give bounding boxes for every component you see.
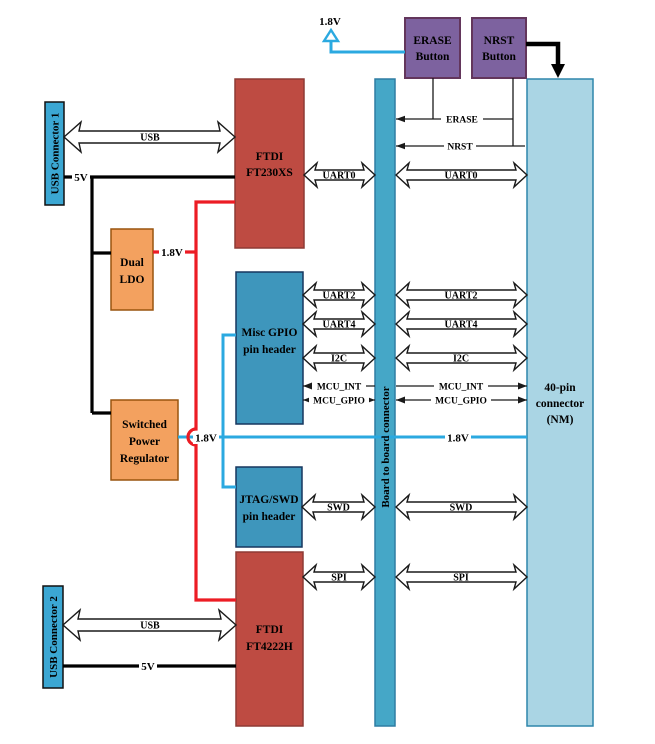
regulator-label-line2: Power: [129, 436, 160, 448]
mcu-int-label-left: MCU_INT: [317, 383, 362, 393]
mcu-int-arrowhead-right: [518, 383, 527, 390]
mcu-int-arrowhead-left: [303, 383, 312, 390]
ftdi-ft4222h-label-line1: FTDI: [256, 624, 284, 636]
bus-label-uart2-right: UART2: [445, 291, 478, 302]
v18-bus-label: 1.8V: [447, 433, 469, 445]
jtag-swd-label-line2: pin header: [243, 511, 296, 523]
wire-1v8-red: [188, 202, 236, 600]
nrst-signal-label: NRST: [447, 143, 473, 153]
nrst-signal-line: [396, 78, 525, 146]
nrst-arrowhead: [396, 143, 405, 149]
jtag-swd-pin-header-block: [236, 467, 302, 547]
dual-ldo-label-line2: LDO: [120, 274, 145, 286]
erase-signal-line: [396, 78, 513, 119]
pin40-label-line3: (NM): [547, 414, 574, 426]
regulator-label-line3: Regulator: [120, 453, 169, 465]
bus-label-swd-left: SWD: [327, 503, 350, 514]
v5-top-label: 5V: [74, 172, 88, 184]
mcu-gpio-label-left: MCU_GPIO: [313, 397, 365, 407]
ftdi-ft230xs-label-line2: FT230XS: [246, 167, 293, 179]
wire-1v8-cyan-headers: [223, 335, 236, 487]
bus-label-i2c-right: I2C: [453, 354, 469, 365]
erase-button-label-line1: ERASE: [413, 35, 452, 47]
erase-button-block: [405, 18, 460, 78]
erase-signal-label: ERASE: [446, 116, 478, 126]
nrst-to-40pin-arrowhead: [551, 64, 565, 78]
pin40-label-line1: 40-pin: [544, 382, 576, 394]
nrst-button-block: [472, 18, 526, 78]
pin40-label-line2: connector: [536, 398, 585, 410]
bus-label-swd-right: SWD: [450, 503, 473, 514]
wire-5v-branch: [92, 177, 111, 413]
v18-regulator-label: 1.8V: [195, 433, 217, 445]
jtag-swd-label-line1: JTAG/SWD: [239, 494, 298, 506]
v18-ldo-label: 1.8V: [161, 247, 183, 259]
usb-connector-2-label: USB Connector 2: [48, 596, 60, 678]
power-flag-1v8-arrow: [324, 30, 338, 41]
bus-label-spi-left: SPI: [331, 573, 347, 584]
mcu-gpio-label-right: MCU_GPIO: [435, 397, 487, 407]
usb-connector-1-label: USB Connector 1: [50, 113, 62, 195]
bus-label-spi-right: SPI: [453, 573, 469, 584]
v5-bottom-label: 5V: [141, 661, 155, 673]
erase-arrowhead: [396, 116, 405, 122]
ftdi-ft230xs-block: [235, 79, 304, 248]
bus-label-usb-top: USB: [140, 133, 160, 144]
nrst-button-label-line2: Button: [482, 51, 516, 63]
bus-label-i2c-left: I2C: [331, 354, 347, 365]
mcu-gpio-arrowhead-right-b: [518, 397, 527, 404]
erase-button-label-line2: Button: [416, 51, 450, 63]
bus-label-uart4-left: UART4: [323, 320, 356, 331]
misc-gpio-label-line1: Misc GPIO: [242, 327, 298, 339]
v18-flag-top-label: 1.8V: [319, 16, 341, 28]
wire-1v8-cyan-erase-button: [331, 41, 405, 52]
bus-label-uart0-right: UART0: [445, 171, 478, 182]
ftdi-ft4222h-label-line2: FT4222H: [246, 641, 293, 653]
board-to-board-label: Board to board connector: [380, 386, 392, 507]
block-diagram: FTDI FT230XS FTDI FT4222H Misc GPIO pin …: [0, 0, 655, 744]
dual-ldo-block: [111, 229, 153, 310]
ftdi-ft230xs-label-line1: FTDI: [256, 151, 284, 163]
ftdi-ft4222h-block: [236, 552, 303, 726]
misc-gpio-label-line2: pin header: [243, 344, 296, 356]
bus-label-uart4-right: UART4: [445, 320, 478, 331]
mcu-int-label-right: MCU_INT: [439, 383, 484, 393]
bus-label-usb-bottom: USB: [140, 621, 160, 632]
mcu-gpio-arrowhead-right-a: [396, 397, 405, 404]
bus-label-uart0-left: UART0: [323, 171, 356, 182]
regulator-label-line1: Switched: [122, 419, 167, 431]
wire-nrst-to-40pin: [526, 44, 558, 66]
nrst-button-label-line1: NRST: [484, 35, 515, 47]
bus-label-uart2-left: UART2: [323, 291, 356, 302]
dual-ldo-label-line1: Dual: [120, 257, 144, 269]
